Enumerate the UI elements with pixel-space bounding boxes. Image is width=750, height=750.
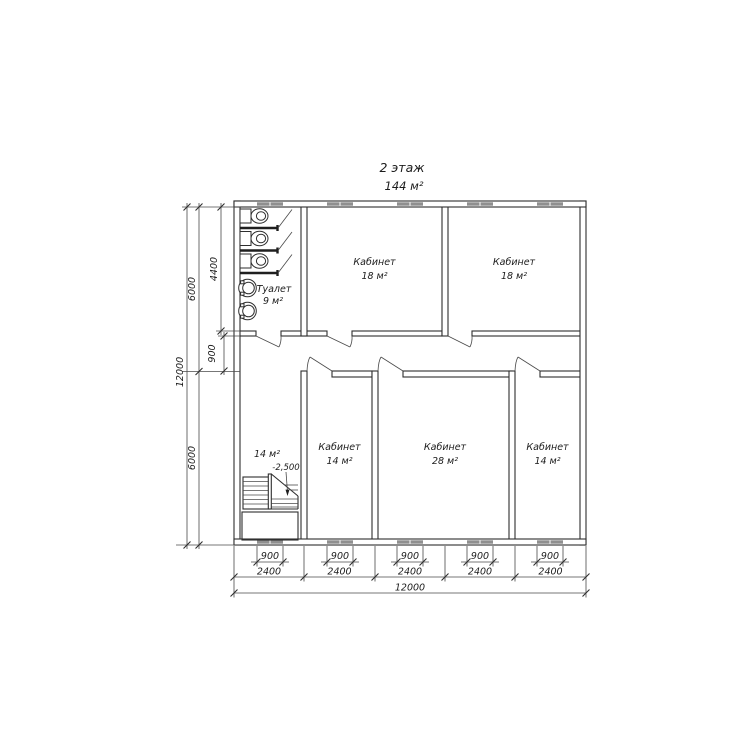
svg-text:2400: 2400 [468,567,492,578]
svg-text:2400: 2400 [327,567,351,578]
dim-lower-height: 6000 [187,446,198,470]
svg-text:900: 900 [261,551,279,562]
svg-text:900: 900 [331,551,349,562]
dimensions-left: 12000 6000 6000 4400 900 [175,203,240,549]
room-office-bottom-right-name: Кабинет [526,442,569,453]
room-office-bottom-center-name: Кабинет [424,442,467,453]
dim-window-3: 900 [391,546,429,567]
dim-total-width: 12000 [231,583,590,597]
sheet-subtitle: 144 м² [385,179,424,193]
dim-window-1: 900 [251,546,289,567]
svg-text:2400: 2400 [538,567,562,578]
svg-text:12000: 12000 [395,583,425,594]
room-office-top-left-area: 18 м² [361,271,387,282]
dim-corridor-width: 900 [207,344,218,362]
room-office-bottom-left-name: Кабинет [318,442,361,453]
room-office-top-right-name: Кабинет [493,257,536,268]
svg-text:2400: 2400 [398,567,422,578]
floor-plan-drawing: 12000 6000 6000 4400 900 900 900 900 [0,0,750,750]
dim-window-4: 900 [461,546,499,567]
dimensions-bottom: 900 900 900 900 900 [231,546,590,598]
dim-total-height: 12000 [175,357,186,387]
dim-window-2: 900 [321,546,359,567]
room-stairwell-area: 14 м² [254,449,280,460]
doors [256,336,540,371]
room-office-bottom-right-area: 14 м² [534,456,560,467]
dim-toilet-depth: 4400 [209,257,220,281]
room-office-top-left-name: Кабинет [353,257,396,268]
sheet-title: 2 этаж [380,160,426,175]
staircase [242,472,298,540]
room-office-top-right-area: 18 м² [501,271,527,282]
svg-text:900: 900 [401,551,419,562]
floor-plan-sheet: 12000 6000 6000 4400 900 900 900 900 [0,0,750,750]
room-toilet-area: 9 м² [263,296,283,307]
svg-text:900: 900 [541,551,559,562]
room-office-bottom-left-area: 14 м² [326,456,352,467]
svg-text:900: 900 [471,551,489,562]
room-office-bottom-center-area: 28 м² [432,456,458,467]
dim-window-5: 900 [531,546,569,567]
dim-upper-height: 6000 [187,277,198,301]
room-toilet-name: Туалет [257,284,292,295]
svg-text:2400: 2400 [257,567,281,578]
room-stairwell-elevation: -2,500 [272,463,299,473]
